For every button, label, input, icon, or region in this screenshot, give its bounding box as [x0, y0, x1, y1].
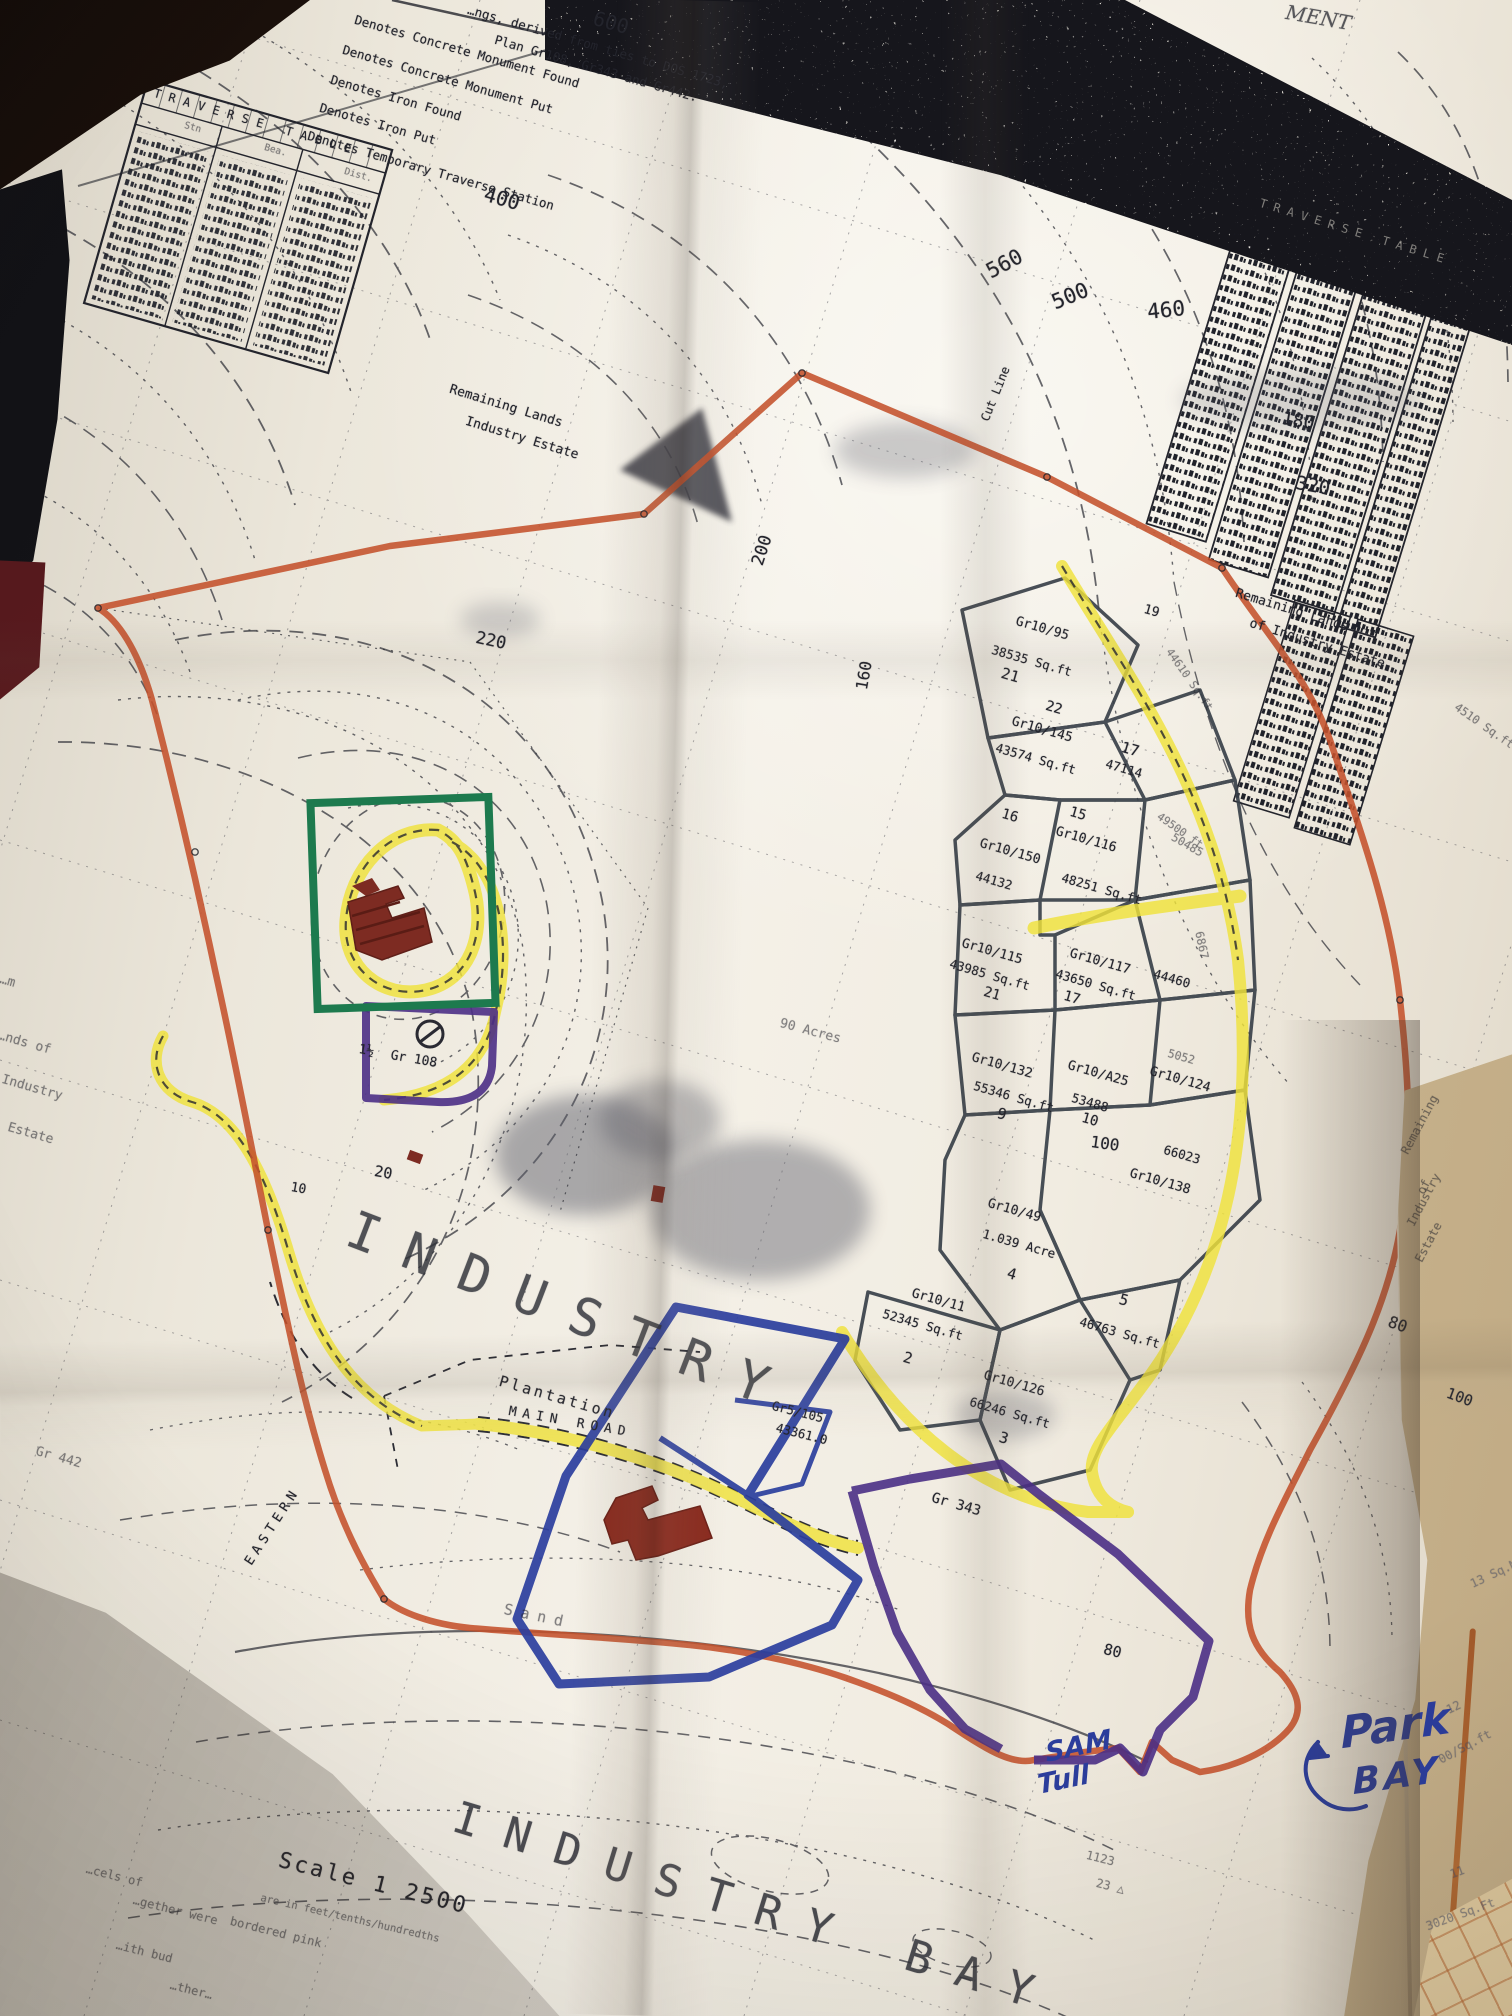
contour-label: 600 [590, 6, 631, 39]
purple-box-fraction: 1½ [357, 1042, 375, 1059]
gr442-label: Gr 442 [34, 1444, 83, 1471]
purple-box-id: Gr 108 [389, 1048, 438, 1071]
parcel-lot: 2 [901, 1348, 915, 1368]
eastern-road-label: EASTERN [242, 1485, 303, 1568]
parcel-lot: 10 [1080, 1110, 1101, 1130]
contour-label: 220 [474, 628, 508, 654]
parcel-id: Gr10/49 [986, 1196, 1043, 1226]
parcel-area: 55346 Sq.ft [972, 1078, 1056, 1115]
parcel-area: 1.039 Acre [981, 1226, 1057, 1261]
sand-label: Sand [502, 1600, 572, 1632]
park-bay-handwriting: Park [1340, 1693, 1451, 1760]
footnote-line: bordered pink [229, 1914, 324, 1950]
footnote-line: …ith bud [115, 1938, 174, 1966]
contour-label: 500 [1048, 278, 1092, 314]
parcel-id: Gr10/116 [1054, 824, 1118, 856]
cut-line-label: Cut Line [978, 364, 1013, 423]
traverse-table-right-title: TRAVERSE TABLE [1258, 196, 1453, 268]
contour-label: 80 [1386, 1312, 1411, 1336]
parcel-area: 44610 Sq.ft [1163, 646, 1215, 713]
parcel-area: 46763 Sq.ft [1078, 1314, 1162, 1351]
contour-label: 560 [982, 244, 1027, 283]
left-edge-note: …nds of [0, 1028, 53, 1058]
contour-label: 320 [1294, 472, 1332, 500]
photo-of-survey-map: …ngs, derived from ties to DOS 1723, Pla… [0, 0, 1512, 2016]
park-bay-handwriting: BAY [1352, 1750, 1442, 1804]
sheet-title-fragment: MENT [1284, 0, 1353, 35]
parcel-area: 66246 Sq.ft [968, 1394, 1052, 1431]
map-labels: …ngs, derived from ties to DOS 1723, Pla… [0, 0, 1512, 2016]
parcel-lot: 15 [1068, 804, 1089, 824]
footnote-line: …cels of [85, 1862, 144, 1890]
footnote-line: …ther… [169, 1978, 214, 2002]
acreage-note: 90 Acres [778, 1016, 842, 1047]
parcel-area: 44132 [974, 868, 1014, 893]
sam-tull-handwriting: Tull [1036, 1759, 1091, 1801]
left-edge-note: Estate [6, 1120, 55, 1147]
parcel-lot: 9 [995, 1104, 1009, 1124]
left-edge-note: …m [0, 972, 17, 991]
parcel-lot: 22 [1044, 698, 1065, 718]
contour-label: 80 [1102, 1640, 1124, 1662]
parcel-lot: 21 [999, 664, 1021, 686]
parcel-lot: 16 [1000, 806, 1021, 826]
parcel-area: 5052 [1166, 1046, 1196, 1067]
parcel-id: Gr10/132 [970, 1050, 1034, 1082]
contour-label: 100 [1089, 1132, 1120, 1155]
parcel-id: Gr10/95 [1014, 614, 1071, 644]
parcel-id: Gr10/145 [1010, 714, 1074, 746]
contour-label: 460 [1146, 296, 1186, 324]
table-header-stn: Stn [183, 120, 203, 135]
parcel-lot: 17 [1119, 738, 1141, 760]
parcel-area: 47114 [1104, 756, 1144, 781]
contour-label: 10 [289, 1180, 307, 1197]
industry-bay-label: INDUSTRY BAY [447, 1792, 1064, 2016]
parcel-area: 43574 Sq.ft [994, 740, 1078, 777]
parcel-lot: 4 [1005, 1264, 1019, 1284]
parcel-id: Gr10/150 [978, 836, 1042, 868]
misc-number: 23 △ [1095, 1876, 1126, 1897]
parcel-lot: 3 [997, 1428, 1011, 1448]
parcel-id: Gr10/11 [910, 1286, 967, 1316]
parcel-lot: 17 [1062, 988, 1083, 1008]
contour-label: 200 [748, 533, 777, 568]
pencil-number: 11 [1448, 1863, 1466, 1881]
parcel-id: Gr10/138 [1128, 1166, 1192, 1198]
left-edge-note: Industry [0, 1072, 64, 1104]
parcel-area: 4510 Sq.ft [1452, 700, 1512, 751]
traverse-table-left-title: TRAVERSE TABLE [152, 86, 361, 158]
parcel-area: 48251 Sq.ft [1060, 870, 1144, 907]
remaining-lands-note: Industry Estate [464, 414, 581, 463]
contour-label: 100 [1444, 1384, 1476, 1410]
contour-label: 160 [852, 660, 876, 692]
misc-number: 1123 [1085, 1848, 1116, 1869]
parcel-area: 66023 [1162, 1142, 1202, 1167]
parcel-id: Gr10/A25 [1066, 1058, 1130, 1090]
table-header-dist: Dist. [343, 166, 374, 184]
parcel-id: Gr10/126 [982, 1368, 1046, 1400]
pencil-number: 3020 Sq.Ft [1424, 1895, 1497, 1933]
contour-label: 20 [373, 1162, 394, 1183]
table-header-bea: Bea. [263, 142, 288, 159]
pencil-number: 13 Sq.M [1468, 1557, 1512, 1591]
contour-label: 180 [1280, 408, 1316, 434]
parcel-id: Gr10/124 [1148, 1064, 1212, 1096]
parcel-lot: 21 [982, 984, 1003, 1004]
footnote-line: …gether were [132, 1893, 220, 1928]
parcel-lot: 19 [1142, 602, 1161, 621]
parcel-id: Gr 343 [930, 1490, 983, 1519]
remaining-edge-note: Remaining [1398, 1093, 1441, 1157]
parcel-area: 6867 [1192, 930, 1211, 960]
parcel-lot: 5 [1117, 1290, 1131, 1310]
parcel-area: 44460 [1152, 966, 1192, 991]
